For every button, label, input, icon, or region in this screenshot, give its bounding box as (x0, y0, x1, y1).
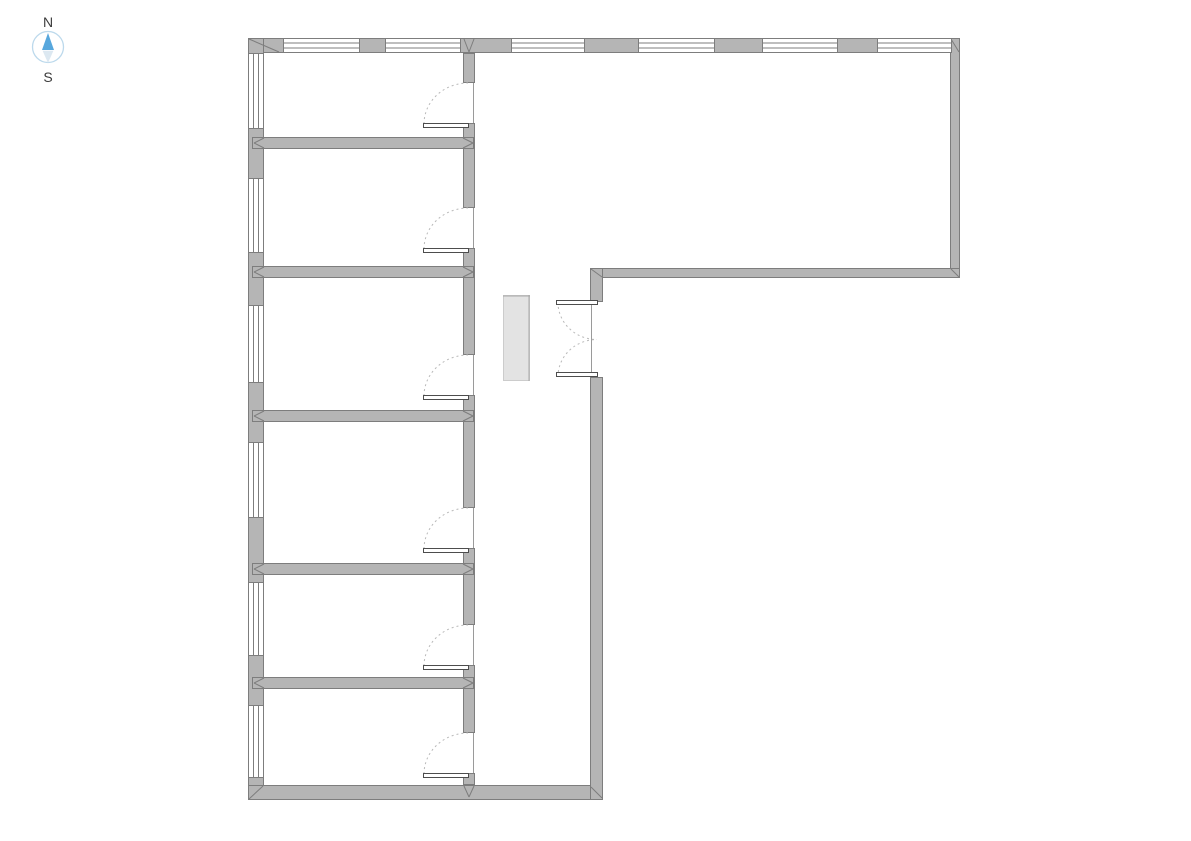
door-swing-arc (424, 508, 468, 549)
window (512, 39, 585, 53)
door-leaf (424, 249, 469, 253)
window (249, 583, 264, 656)
door-leaf (424, 124, 469, 128)
door-leaf (557, 301, 598, 305)
window (249, 443, 264, 518)
bottom-exterior-wall (249, 786, 603, 800)
corridor-east-wall-lower (591, 378, 603, 800)
partition-wall-5 (253, 678, 474, 689)
window (249, 706, 264, 778)
compass-north-label: N (43, 14, 53, 30)
window (639, 39, 715, 53)
rooms-east-wall-seg-5 (464, 549, 475, 625)
window (878, 39, 952, 53)
door-leaf (424, 396, 469, 400)
east-wing-south-wall (593, 269, 960, 278)
door-leaf (424, 774, 469, 778)
door-leaf (424, 666, 469, 670)
compass-needle-south (43, 51, 54, 63)
partition-wall-2 (253, 267, 474, 278)
window (386, 39, 461, 53)
rooms-east-wall-seg-6 (464, 666, 475, 733)
partition-wall-1 (253, 138, 474, 149)
door-swing-arc (424, 355, 468, 396)
door-swing-arc (424, 208, 468, 249)
window (249, 54, 264, 129)
rooms-east-wall-seg-2 (464, 124, 475, 208)
window (763, 39, 838, 53)
rooms-east-wall-seg-1 (464, 54, 475, 83)
right-exterior-wall (951, 39, 960, 278)
floorplan-canvas: N S (0, 0, 1191, 841)
door-swing-arc (424, 83, 468, 124)
compass-south-label: S (43, 69, 52, 85)
compass: N S (14, 8, 82, 92)
floor-plan (0, 0, 1191, 841)
window (249, 306, 264, 383)
corridor-fixture (504, 296, 530, 381)
partition-wall-4 (253, 564, 474, 575)
partition-wall-3 (253, 411, 474, 422)
door-swing-arc (424, 625, 468, 666)
door-swing-arc (424, 733, 468, 774)
window (249, 179, 264, 253)
rooms-east-wall-seg-3 (464, 249, 475, 355)
door-leaf (424, 549, 469, 553)
compass-needle-north (42, 33, 54, 50)
window (284, 39, 360, 53)
door-leaf (557, 373, 598, 377)
